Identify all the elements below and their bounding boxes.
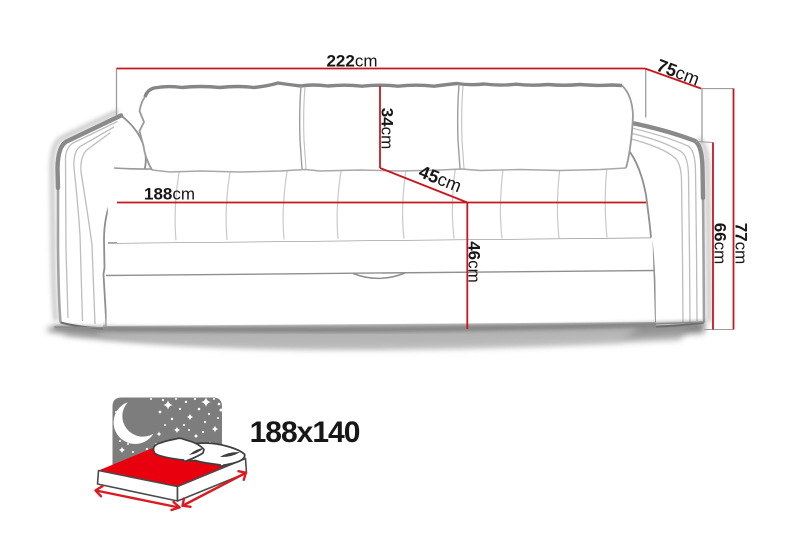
svg-text:34cm: 34cm bbox=[378, 108, 397, 150]
svg-text:66cm: 66cm bbox=[711, 223, 730, 265]
svg-text:188cm: 188cm bbox=[144, 185, 195, 204]
svg-text:188x140: 188x140 bbox=[250, 416, 360, 449]
svg-text:77cm: 77cm bbox=[732, 223, 751, 265]
svg-text:222cm: 222cm bbox=[326, 52, 377, 71]
svg-text:46cm: 46cm bbox=[465, 241, 484, 283]
